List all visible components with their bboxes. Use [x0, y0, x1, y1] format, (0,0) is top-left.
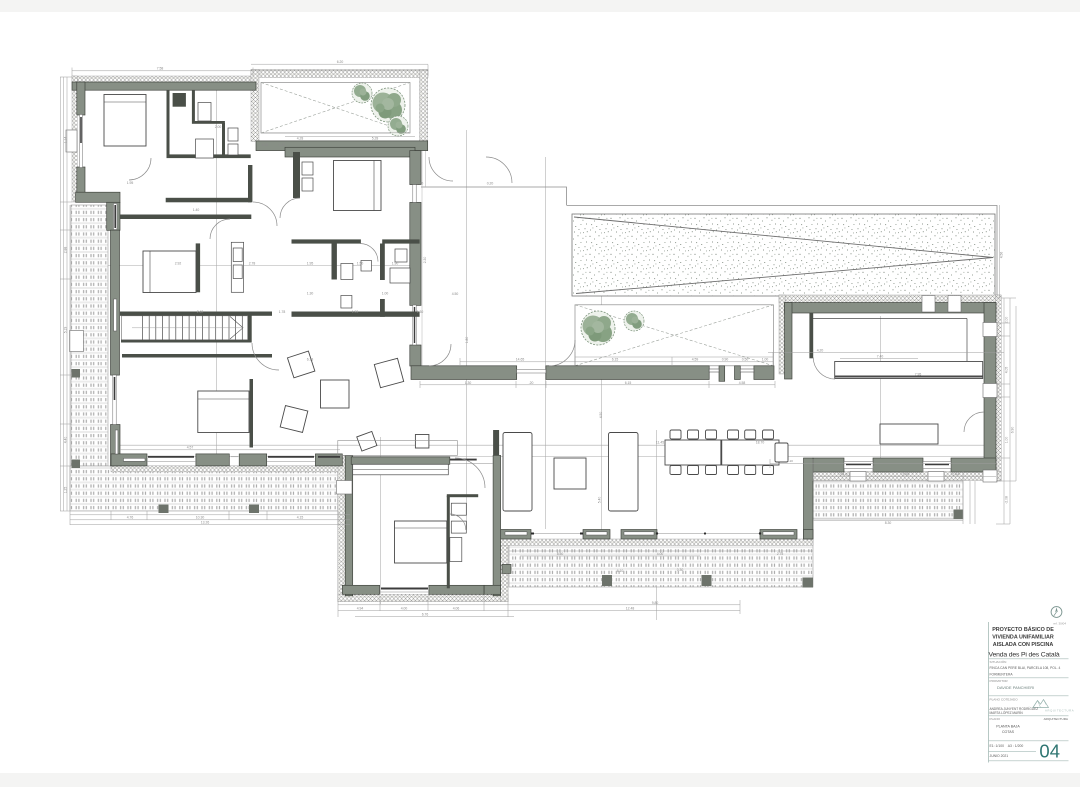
svg-text:1.95: 1.95	[307, 262, 314, 266]
svg-text:AISLADA CON PISCINA: AISLADA CON PISCINA	[993, 642, 1054, 648]
svg-text:7.95: 7.95	[915, 373, 922, 377]
svg-text:9.80: 9.80	[652, 601, 659, 605]
svg-text:E1: 1/100 A3 : 1/200: E1: 1/100 A3 : 1/200	[990, 744, 1024, 748]
svg-text:Venda des Pi des Català: Venda des Pi des Català	[989, 651, 1060, 658]
svg-text:PLANTA BAJA: PLANTA BAJA	[996, 725, 1020, 729]
svg-text:1.30: 1.30	[417, 310, 424, 314]
svg-text:4.28: 4.28	[297, 137, 304, 141]
svg-text:4.59: 4.59	[692, 358, 699, 362]
svg-text:1.00: 1.00	[762, 358, 769, 362]
svg-text:PROYECTO BÁSICO DE: PROYECTO BÁSICO DE	[992, 626, 1054, 633]
svg-text:PROMOTOR: PROMOTOR	[990, 679, 1009, 683]
svg-text:-2.40: -2.40	[901, 473, 909, 477]
svg-text:04: 04	[1039, 741, 1060, 762]
svg-text:COTAS: COTAS	[1002, 730, 1015, 734]
svg-text:1.14: 1.14	[63, 137, 67, 144]
svg-text:12.48: 12.48	[626, 607, 635, 611]
svg-text:JUNIO 2021: JUNIO 2021	[990, 754, 1009, 758]
svg-text:VIVIENDA UNIFAMILIAR: VIVIENDA UNIFAMILIAR	[992, 635, 1054, 641]
svg-text:4.15: 4.15	[297, 516, 304, 520]
svg-text:11.45: 11.45	[656, 441, 664, 445]
svg-text:6.20: 6.20	[337, 60, 344, 64]
svg-text:0.30: 0.30	[677, 568, 684, 572]
svg-text:0.4-0.3: 0.4-0.3	[840, 473, 851, 477]
svg-text:1.95: 1.95	[127, 181, 134, 185]
svg-text:7.40: 7.40	[877, 355, 884, 359]
svg-text:PLANO: PLANO	[990, 717, 1001, 721]
svg-text:MARTA LÓPEZ MARÍN: MARTA LÓPEZ MARÍN	[990, 710, 1024, 715]
svg-text:1.05: 1.05	[262, 143, 269, 147]
svg-text:18.70: 18.70	[756, 441, 765, 445]
svg-text:6.10: 6.10	[617, 569, 624, 573]
svg-text:1.40: 1.40	[193, 208, 200, 212]
svg-text:1.90: 1.90	[392, 262, 399, 266]
svg-text:2.75: 2.75	[777, 552, 784, 556]
svg-text:1.20: 1.20	[787, 459, 793, 463]
svg-text:FINCA CAN PERE BLAI, PARCELA 1: FINCA CAN PERE BLAI, PARCELA 108, POL. 4	[990, 666, 1061, 670]
svg-text:6.15: 6.15	[625, 381, 632, 385]
svg-text:2.88: 2.88	[63, 247, 67, 254]
svg-text:1.00: 1.00	[1005, 437, 1009, 444]
svg-text:ARQUITECTURA: ARQUITECTURA	[1044, 717, 1069, 721]
svg-text:5.28: 5.28	[372, 137, 379, 141]
svg-text:-2.08: -2.08	[1005, 496, 1009, 504]
svg-text:4.76: 4.76	[127, 516, 134, 520]
svg-text:5.19: 5.19	[63, 327, 67, 334]
svg-text:1.93: 1.93	[352, 310, 359, 314]
svg-text:2.00: 2.00	[1005, 317, 1009, 324]
svg-text:14.65: 14.65	[516, 358, 525, 362]
svg-text:DAVIDE PANCHIERI: DAVIDE PANCHIERI	[997, 685, 1034, 690]
svg-text:8.30: 8.30	[885, 521, 892, 525]
svg-text:10.30: 10.30	[196, 516, 205, 520]
svg-text:PLANO COTEJADO: PLANO COTEJADO	[990, 698, 1019, 702]
svg-text:6.13: 6.13	[307, 358, 314, 362]
svg-text:1.30: 1.30	[417, 181, 424, 185]
svg-text:7.58: 7.58	[157, 67, 164, 71]
svg-text:1.80: 1.80	[465, 337, 469, 344]
svg-text:4.58: 4.58	[739, 381, 746, 385]
svg-text:8.50: 8.50	[557, 552, 564, 556]
svg-text:4.56: 4.56	[1000, 252, 1004, 259]
svg-text:4.00: 4.00	[657, 552, 664, 556]
svg-text:ref. 30/04: ref. 30/04	[1053, 622, 1066, 626]
svg-text:4.50: 4.50	[599, 412, 603, 419]
svg-text:1.78: 1.78	[279, 310, 286, 314]
svg-text:4.05: 4.05	[1005, 367, 1009, 374]
svg-text:2.78: 2.78	[249, 262, 256, 266]
svg-text:1.25: 1.25	[63, 487, 67, 494]
svg-text:.20: .20	[529, 381, 534, 385]
svg-text:-2.44: -2.44	[951, 473, 959, 477]
svg-text:4.57: 4.57	[187, 446, 194, 450]
svg-text:4.00: 4.00	[401, 607, 408, 611]
svg-text:0.90: 0.90	[722, 358, 729, 362]
svg-text:1.50: 1.50	[357, 262, 364, 266]
svg-text:6.90: 6.90	[1011, 427, 1015, 434]
svg-text:4.20: 4.20	[817, 349, 824, 353]
svg-text:6.76: 6.76	[422, 612, 429, 616]
svg-text:4.06: 4.06	[453, 607, 460, 611]
svg-text:0.20: 0.20	[487, 181, 494, 185]
svg-text:1.30: 1.30	[465, 381, 472, 385]
svg-text:1.30: 1.30	[307, 292, 314, 296]
svg-text:4.94: 4.94	[357, 607, 364, 611]
svg-text:ARQUITECTURA: ARQUITECTURA	[1045, 709, 1074, 713]
svg-text:SITUACIÓN: SITUACIÓN	[990, 659, 1007, 664]
svg-text:2.00: 2.00	[215, 125, 222, 129]
svg-text:1.00: 1.00	[382, 292, 389, 296]
svg-text:13.26: 13.26	[201, 520, 210, 524]
svg-text:5.40: 5.40	[598, 497, 602, 504]
svg-text:0.12: 0.12	[279, 143, 286, 147]
svg-text:2.42: 2.42	[197, 310, 204, 314]
svg-text:0.50: 0.50	[742, 358, 749, 362]
svg-text:FORMENTERA: FORMENTERA	[990, 673, 1014, 677]
svg-text:4.40: 4.40	[63, 437, 67, 444]
svg-text:2.92: 2.92	[175, 262, 182, 266]
svg-text:6.15: 6.15	[612, 358, 619, 362]
svg-text:2.30: 2.30	[423, 257, 427, 264]
svg-text:4.50: 4.50	[452, 292, 459, 296]
